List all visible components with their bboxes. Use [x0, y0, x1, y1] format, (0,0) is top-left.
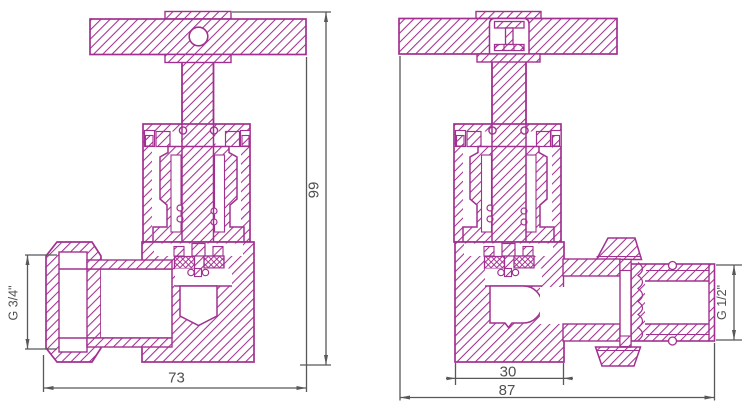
svg-text:99: 99 — [306, 182, 323, 199]
svg-text:G 3/4": G 3/4" — [7, 285, 21, 320]
svg-text:G 1/2": G 1/2" — [715, 285, 729, 320]
svg-text:30: 30 — [500, 364, 517, 381]
svg-text:87: 87 — [499, 382, 516, 399]
svg-text:73: 73 — [168, 370, 185, 387]
